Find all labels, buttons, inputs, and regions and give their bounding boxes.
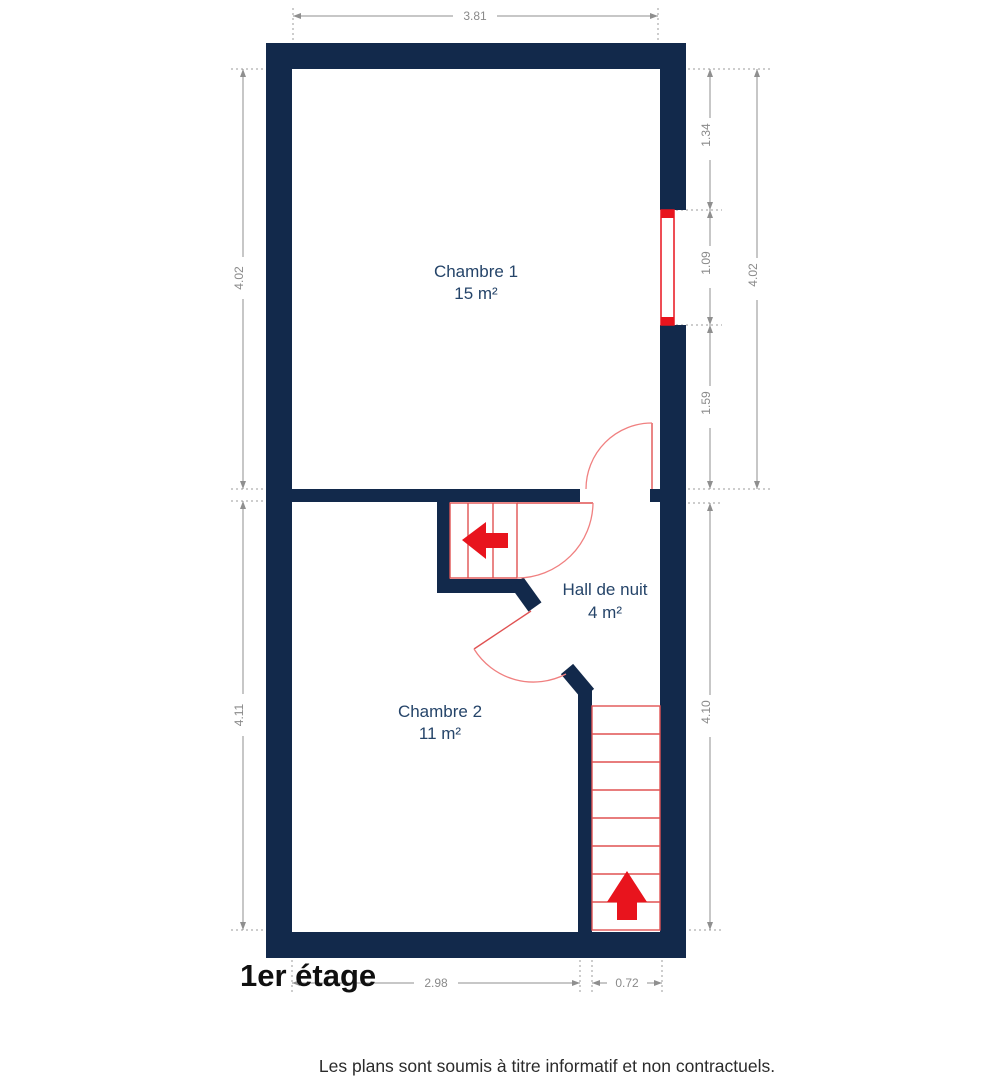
dim-label-right-seg3: 1.59 xyxy=(699,391,713,415)
room-area-chambre1: 15 m² xyxy=(454,284,498,303)
dim-label-right-seg2: 1.09 xyxy=(699,251,713,275)
disclaimer-text: Les plans sont soumis à titre informatif… xyxy=(319,1056,775,1076)
dim-label-top: 3.81 xyxy=(463,9,487,23)
wall-middle xyxy=(292,489,580,502)
dim-label-bottom-right: 0.72 xyxy=(615,976,639,990)
wall-left xyxy=(266,43,292,958)
dim-label-right-lower: 4.10 xyxy=(699,700,713,724)
floor-plan-svg: 3.81 4.02 4.11 1.34 1.09 1.59 4.02 4.10 … xyxy=(0,0,1001,1080)
room-label-chambre1: Chambre 1 xyxy=(434,262,518,281)
wall-diagonal-upper xyxy=(517,582,535,607)
room-label-hall: Hall de nuit xyxy=(562,580,647,599)
dim-label-right-total: 4.02 xyxy=(746,263,760,287)
stairs-upper xyxy=(450,503,593,578)
wall-middle-stub xyxy=(650,489,660,502)
stairs-lower xyxy=(592,706,660,930)
dim-label-bottom-left: 2.98 xyxy=(424,976,448,990)
wall-right-lower xyxy=(660,325,686,958)
door-arc-chambre2 xyxy=(474,649,566,682)
dim-label-right-seg1: 1.34 xyxy=(699,123,713,147)
door-leaf-chambre2 xyxy=(474,611,531,649)
dim-label-left-upper: 4.02 xyxy=(232,266,246,290)
door-chambre2 xyxy=(474,611,566,682)
window-cap-bottom xyxy=(661,317,674,325)
floor-title: 1er étage xyxy=(240,958,376,993)
floor-plan-page: 3.81 4.02 4.11 1.34 1.09 1.59 4.02 4.10 … xyxy=(0,0,1001,1080)
window-frame xyxy=(661,210,674,325)
wall-right-upper xyxy=(660,43,686,210)
wall-stairwell-bottom xyxy=(437,579,521,593)
wall-bottom xyxy=(266,932,686,958)
room-area-hall: 4 m² xyxy=(588,603,622,622)
wall-top xyxy=(266,43,686,69)
room-area-chambre2: 11 m² xyxy=(419,724,462,743)
door-arc-chambre1 xyxy=(586,423,652,489)
wall-lower-stair-left xyxy=(578,690,592,932)
dim-label-left-lower: 4.11 xyxy=(232,703,246,726)
door-arc-stairs xyxy=(517,503,593,578)
door-chambre1 xyxy=(586,423,652,489)
room-label-chambre2: Chambre 2 xyxy=(398,702,482,721)
window-cap-top xyxy=(661,210,674,218)
window-right xyxy=(661,210,674,325)
wall-diagonal-lower xyxy=(567,669,588,694)
